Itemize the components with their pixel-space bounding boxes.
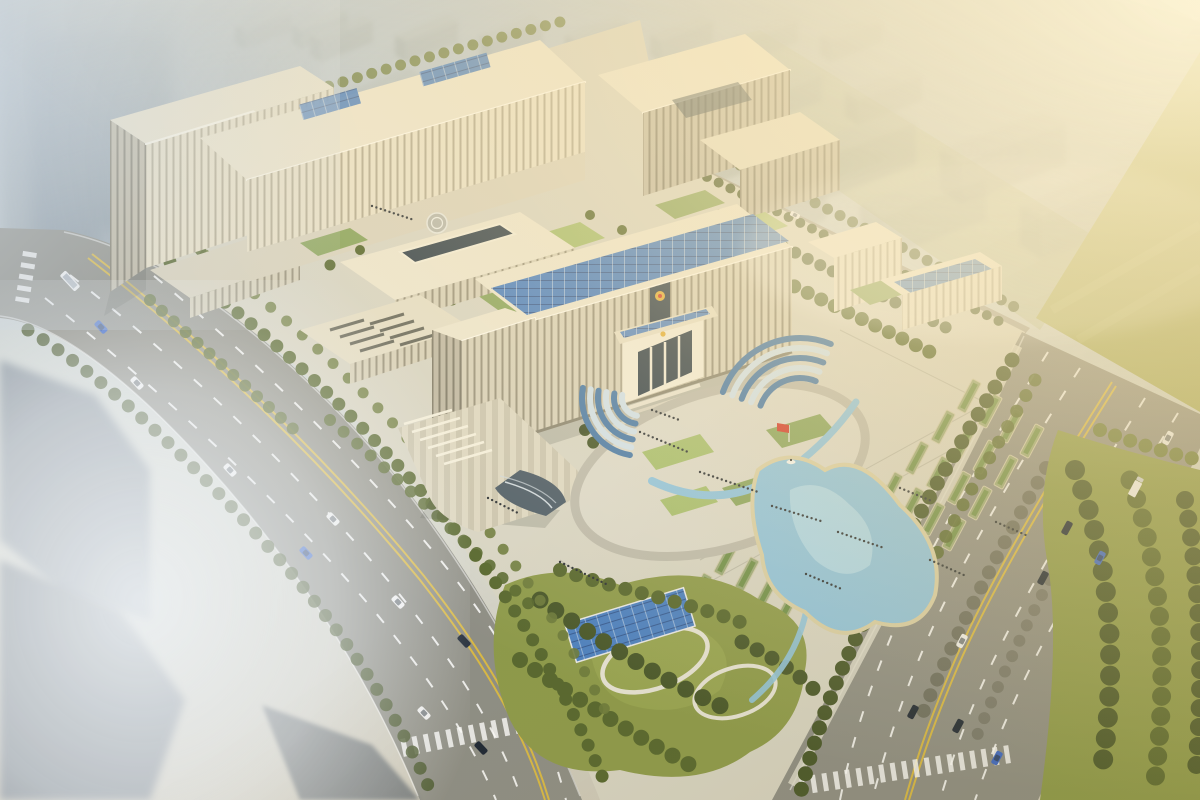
scene-svg <box>0 0 1200 800</box>
olive-overlay <box>0 0 1200 800</box>
rendering-canvas <box>0 0 1200 800</box>
